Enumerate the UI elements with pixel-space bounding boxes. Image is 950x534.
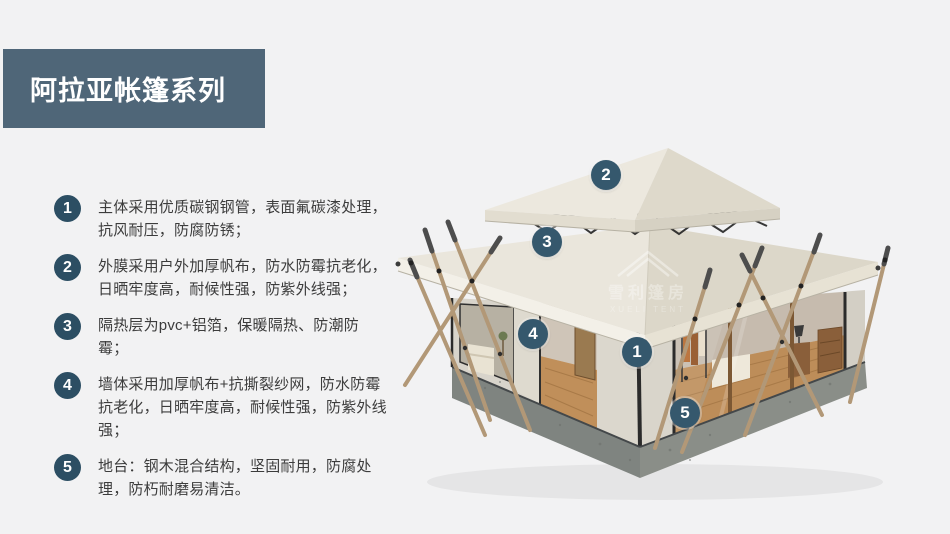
marker-label: 4 xyxy=(528,324,537,344)
marker-label: 1 xyxy=(632,342,641,362)
watermark-en-text: XUELI TENT xyxy=(610,305,686,314)
number-badge: 4 xyxy=(54,372,81,399)
tent-illustration: 雪利篷房 XUELI TENT xyxy=(390,130,910,530)
tent-marker-5: 5 xyxy=(670,398,700,428)
cap-roof xyxy=(485,148,780,232)
list-item: 4 墙体采用加厚帆布+抗撕裂纱网，防水防霉抗老化，日晒牢度高，耐候性强，防紫外线… xyxy=(54,373,390,442)
canvas-pillar xyxy=(514,301,540,404)
tent-marker-1: 1 xyxy=(622,337,652,367)
feature-text: 地台：钢木混合结构，坚固耐用，防腐处理，防朽耐磨易清洁。 xyxy=(98,455,388,501)
slide: 阿拉亚帐篷系列 1 主体采用优质碳钢钢管，表面氟碳漆处理，抗风耐压，防腐防锈； … xyxy=(0,0,950,534)
list-item: 1 主体采用优质碳钢钢管，表面氟碳漆处理，抗风耐压，防腐防锈； xyxy=(54,196,390,242)
tent-marker-4: 4 xyxy=(518,319,548,349)
tent-marker-2: 2 xyxy=(591,160,621,190)
number-badge: 2 xyxy=(54,254,81,281)
number-badge: 1 xyxy=(54,195,81,222)
number-badge: 3 xyxy=(54,313,81,340)
marker-label: 2 xyxy=(601,165,610,185)
page-title: 阿拉亚帐篷系列 xyxy=(30,69,226,108)
marker-label: 5 xyxy=(680,403,689,423)
list-item: 3 隔热层为pvc+铝箔，保暖隔热、防潮防霉； xyxy=(54,314,390,360)
plant xyxy=(499,332,508,341)
marker-label: 3 xyxy=(542,232,551,252)
feature-list: 1 主体采用优质碳钢钢管，表面氟碳漆处理，抗风耐压，防腐防锈； 2 外膜采用户外… xyxy=(54,196,390,514)
list-item: 2 外膜采用户外加厚帆布，防水防霉抗老化，日晒牢度高，耐候性强，防紫外线强； xyxy=(54,255,390,301)
watermark-cn-text: 雪利篷房 xyxy=(608,283,688,302)
feature-text: 墙体采用加厚帆布+抗撕裂纱网，防水防霉抗老化，日晒牢度高，耐候性强，防紫外线强； xyxy=(98,373,388,442)
feature-text: 隔热层为pvc+铝箔，保暖隔热、防潮防霉； xyxy=(98,314,388,360)
tent-marker-3: 3 xyxy=(532,227,562,257)
title-banner: 阿拉亚帐篷系列 xyxy=(3,49,265,128)
dresser xyxy=(818,327,842,373)
feature-text: 外膜采用户外加厚帆布，防水防霉抗老化，日晒牢度高，耐候性强，防紫外线强； xyxy=(98,255,388,301)
number-badge: 5 xyxy=(54,454,81,481)
list-item: 5 地台：钢木混合结构，坚固耐用，防腐处理，防朽耐磨易清洁。 xyxy=(54,455,390,501)
feature-text: 主体采用优质碳钢钢管，表面氟碳漆处理，抗风耐压，防腐防锈； xyxy=(98,196,388,242)
